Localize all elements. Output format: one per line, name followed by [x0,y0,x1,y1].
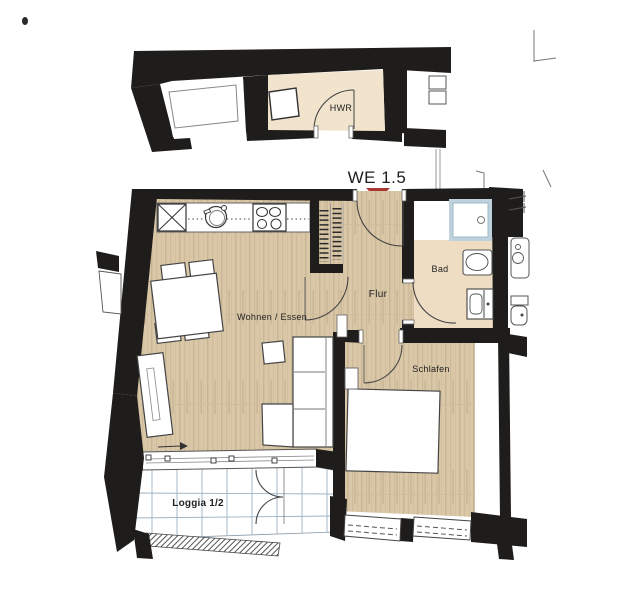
scan-speck [22,17,28,25]
window-handle [165,456,170,461]
neighbor-wall-line [534,58,556,61]
bad-door-frame [403,320,414,324]
stair-door-mark [429,91,446,104]
neighbor-wall-ext [508,334,527,357]
top-mid-wall [243,75,270,132]
sofa-chaise-icon [262,404,293,447]
top-section: HWR [131,47,451,152]
hwr-label: HWR [330,103,353,113]
stair-door-mark [429,76,446,89]
kitchen-counter [157,203,310,232]
flur-bad-wall-upper [402,199,414,283]
loggia-label: Loggia 1/2 [172,498,224,509]
outside-annex-outline [99,271,121,314]
top-right-wall [383,68,407,134]
wohnen-schlafen-wall [333,332,345,500]
wardrobe-stub-wall [310,264,343,273]
bad-right-wall [492,200,508,343]
wall-niche [345,368,358,389]
bed-icon [346,389,440,473]
bedroom-right-wall [498,333,511,518]
tick-mark [543,170,551,187]
flur-label: Flur [369,289,388,300]
cooktop-icon [253,204,286,231]
entrance-threshold [357,191,402,203]
entrance-frame [353,190,357,201]
window-pier [400,518,414,542]
floor-plan-canvas: HWR WE 1.5 [0,0,620,600]
corridor-lines [436,30,556,190]
corner-mark [476,171,484,190]
main-unit: Loggia 1/2 [96,187,529,560]
kitchen-flur-wall [310,199,319,265]
neighbor-toilet-icon [511,306,527,325]
unit-marker-label: WE 1.5 [348,168,407,187]
neighbor-washbasin-icon [511,238,529,278]
band-left-stub [127,448,143,470]
neighbor-toilet-tank [511,296,528,305]
window-handle [211,458,216,463]
neighbor-toilet-dot [521,314,524,317]
bottom-right-block [471,512,527,547]
hwr-door-frame [314,126,318,138]
bad-label: Bad [432,264,449,274]
living-door-frame [337,315,347,337]
hwr-door-frame [349,126,353,138]
window-handle [146,455,151,460]
bedroom-door-frame [399,330,403,343]
loggia-area: Loggia 1/2 [125,464,338,556]
side-table-icon [262,341,285,364]
bedroom-door-frame [359,330,363,343]
toilet-flush-dot [487,303,490,306]
outside-stub-wall [96,251,119,272]
wohnen-label: Wohnen / Essen [237,312,307,322]
entrance-frame [402,190,406,201]
shower-drain [478,217,485,224]
sink-tap-icon [222,206,227,211]
window-handle [272,458,277,463]
loggia-floor [125,467,338,539]
window-handle [229,456,234,461]
duct-shaft-icon [269,88,299,120]
bad-white-area [414,200,449,240]
dining-table-icon [151,273,224,339]
bedroom-window [344,515,401,541]
top-wall-stub [404,128,446,148]
schlafen-label: Schlafen [412,364,449,374]
storage-room-floor [162,78,245,137]
sofa-icon [293,337,333,447]
bad-door-frame [403,279,414,283]
bottom-right-tail [497,544,514,560]
bad-bottom-wall [400,328,510,343]
floor-plan-page: HWR WE 1.5 [0,0,620,600]
